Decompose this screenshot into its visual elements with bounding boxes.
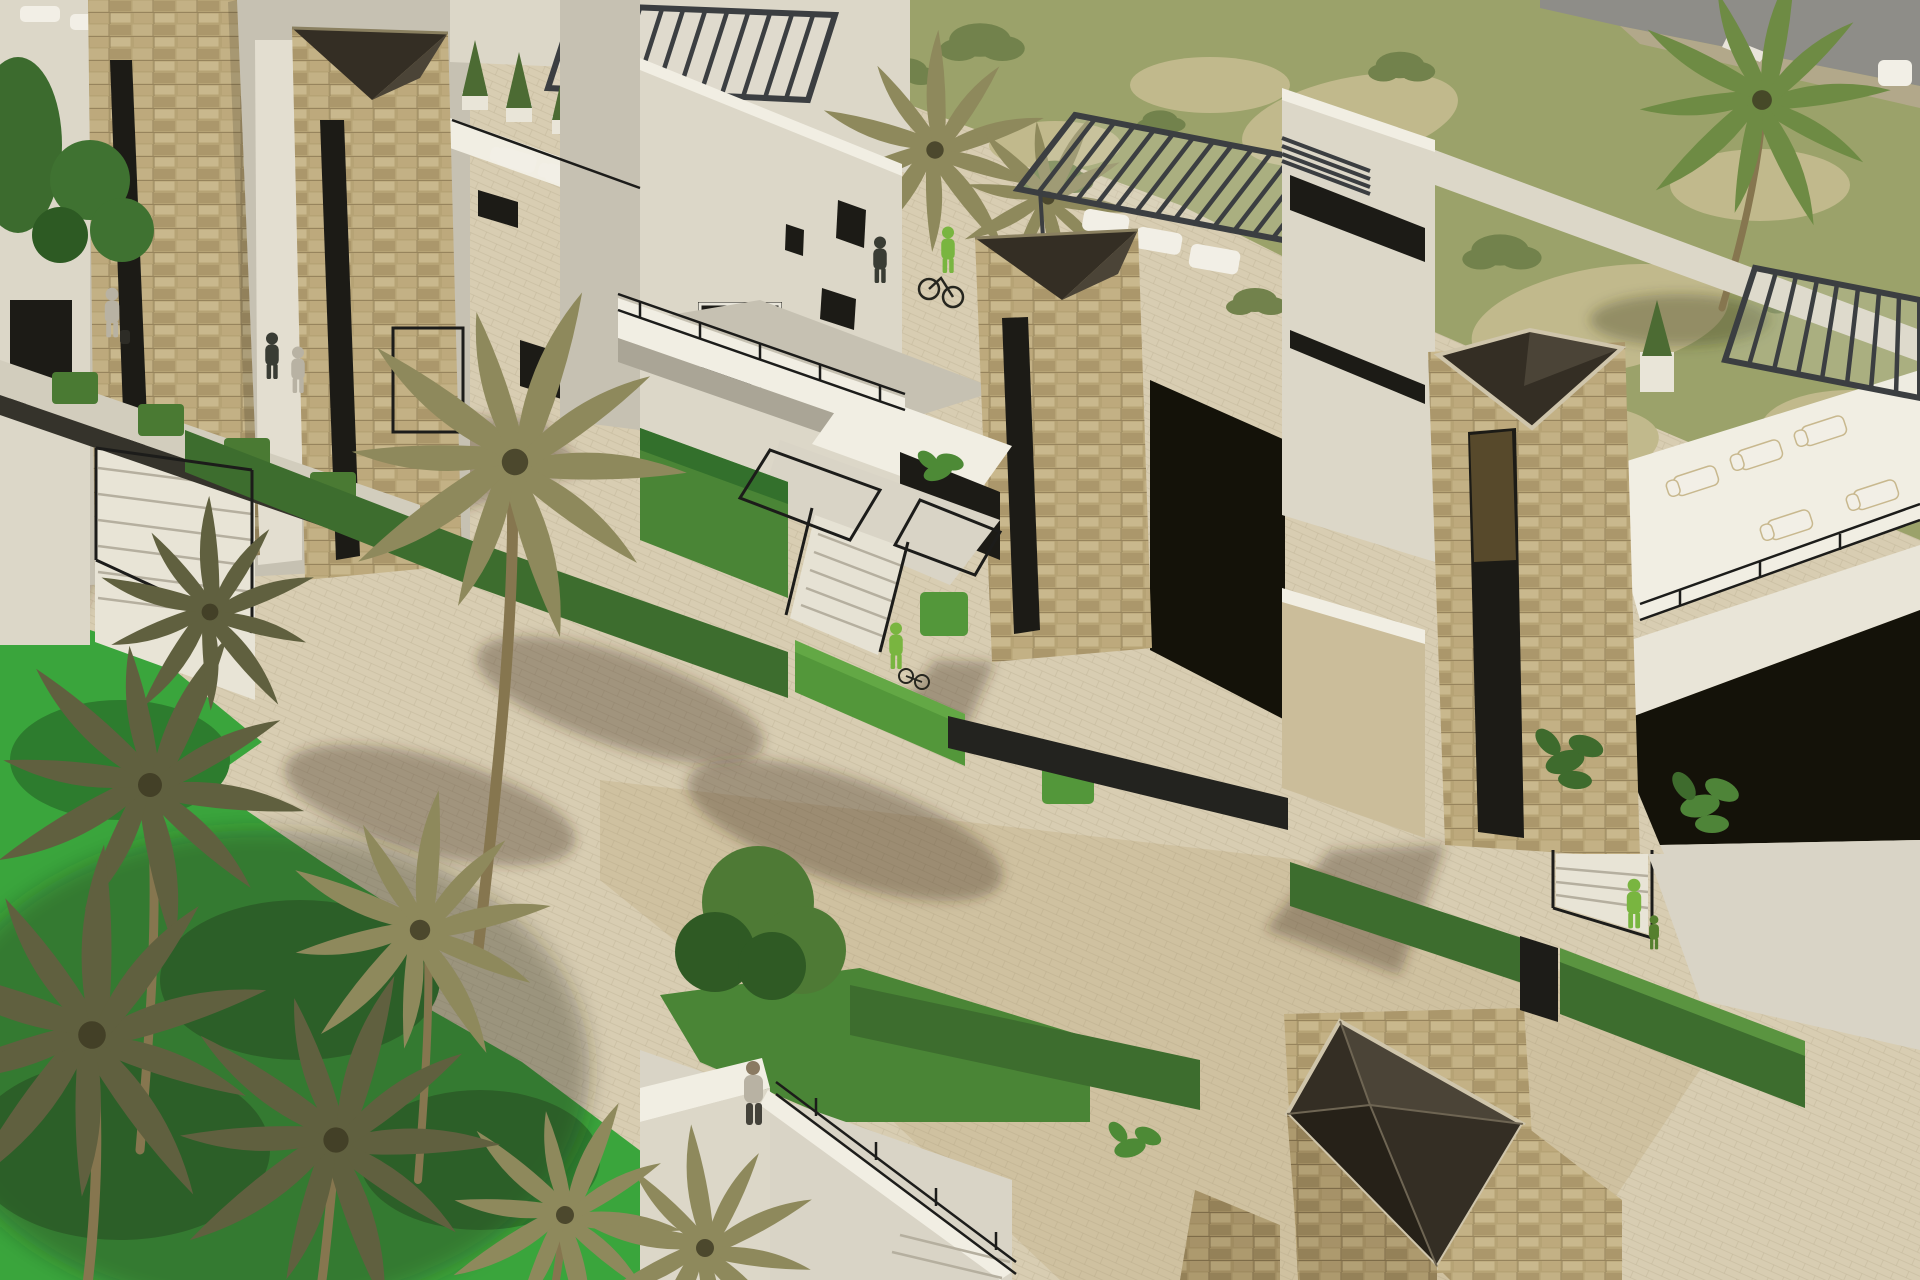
architectural-render bbox=[0, 0, 1920, 1280]
stone-tower-d bbox=[1428, 330, 1640, 858]
render-canvas bbox=[0, 0, 1920, 1280]
side-wall bbox=[560, 0, 640, 430]
shoulder-bag bbox=[120, 330, 130, 344]
roof-chair bbox=[1878, 60, 1912, 86]
fence-gate bbox=[1520, 936, 1558, 1022]
